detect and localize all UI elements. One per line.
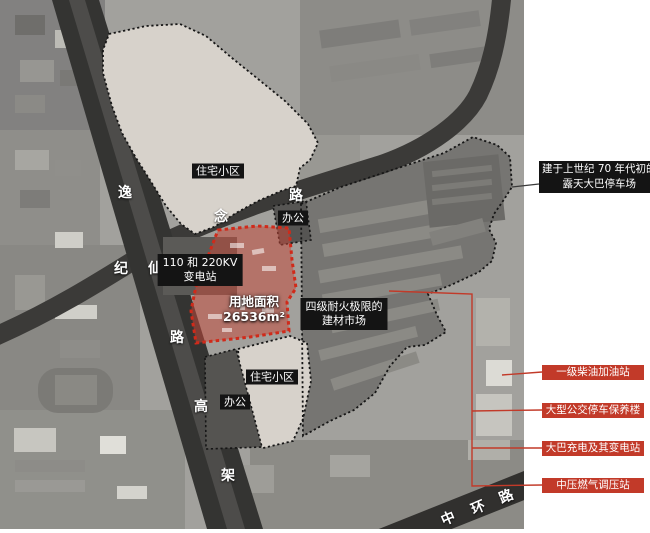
label-site-area-line1: 用地面积 <box>223 294 285 309</box>
label-substation: 110 和 220KV 变电站 <box>158 254 243 286</box>
road-char-yixian-4: 高 <box>194 396 208 416</box>
site-plan-figure: 住宅小区 办公 110 和 220KV 变电站 四级耐火极限的 建材市场 住宅小… <box>0 0 650 533</box>
label-residential-top: 住宅小区 <box>192 164 244 179</box>
callout-bus-parking: 建于上世纪 70 年代初的 露天大巴停车场 <box>539 161 650 193</box>
road-char-yixian-3: 路 <box>170 327 184 347</box>
label-market-line1: 四级耐火极限的 <box>306 300 383 314</box>
road-char-jinian-2: 念 <box>214 206 228 226</box>
label-market: 四级耐火极限的 建材市场 <box>301 298 388 330</box>
map-imagery <box>0 0 548 533</box>
road-char-jinian-1: 纪 <box>114 258 128 278</box>
label-office-top: 办公 <box>278 211 308 226</box>
callout-diesel-station: 一级柴油加油站 <box>542 365 644 380</box>
connector-maintenance <box>472 410 542 411</box>
label-site-area-line2: 26536m² <box>223 309 285 324</box>
label-substation-line1: 110 和 220KV <box>163 256 238 270</box>
callout-bus-parking-line2: 露天大巴停车场 <box>542 177 650 192</box>
callout-charging-substation: 大巴充电及其变电站 <box>542 441 644 456</box>
road-char-jinian-3: 路 <box>289 185 303 205</box>
label-site-area: 用地面积 26536m² <box>223 294 285 324</box>
callout-gas-regulating-station: 中压燃气调压站 <box>542 478 644 493</box>
road-char-yixian-1: 逸 <box>118 182 132 202</box>
callout-maintenance-building: 大型公交停车保养楼 <box>542 403 644 418</box>
label-market-line2: 建材市场 <box>306 314 383 328</box>
road-char-yixian-5: 架 <box>221 465 235 485</box>
label-substation-line2: 变电站 <box>163 270 238 284</box>
label-residential-bottom: 住宅小区 <box>246 370 298 385</box>
callout-bus-parking-line1: 建于上世纪 70 年代初的 <box>542 162 650 177</box>
label-office-bottom: 办公 <box>220 395 250 410</box>
